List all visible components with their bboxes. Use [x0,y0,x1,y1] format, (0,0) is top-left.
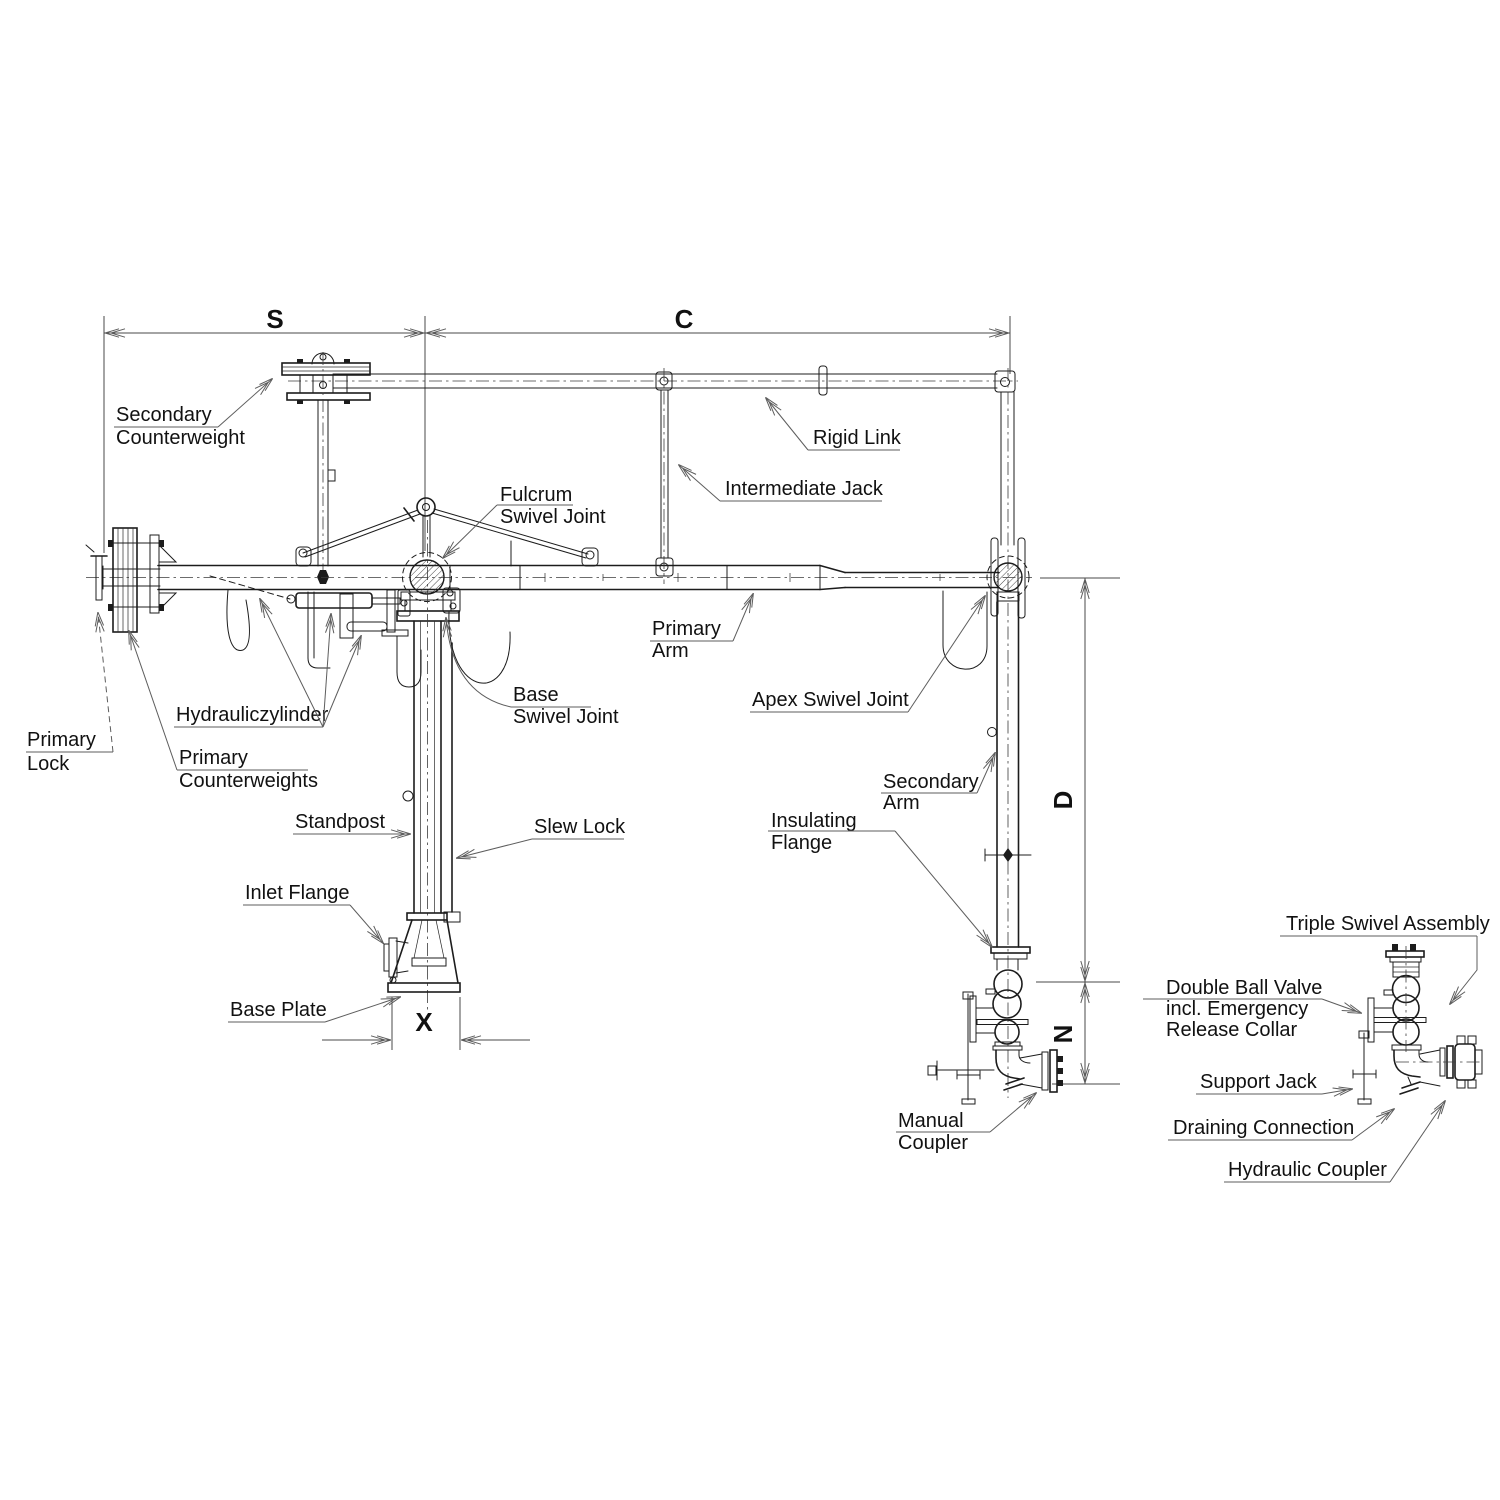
dimension-n-letter: N [1048,1025,1078,1044]
svg-text:Slew Lock: Slew Lock [534,816,626,838]
svg-text:Rigid Link: Rigid Link [813,427,902,449]
svg-text:Base Plate: Base Plate [230,999,327,1021]
svg-text:Apex Swivel Joint: Apex Swivel Joint [752,689,909,711]
svg-text:Support Jack: Support Jack [1200,1071,1318,1093]
svg-text:Insulating: Insulating [771,810,857,832]
svg-text:Primary: Primary [179,747,248,769]
svg-text:Manual: Manual [898,1110,964,1132]
svg-text:Inlet Flange: Inlet Flange [245,882,350,904]
svg-text:Triple Swivel Assembly: Triple Swivel Assembly [1286,913,1490,935]
svg-text:Counterweight: Counterweight [116,427,245,449]
svg-text:Primary: Primary [27,729,96,751]
svg-text:Hydrauliczylinder: Hydrauliczylinder [176,704,329,726]
technical-drawing-page: S C X D N [0,0,1500,1500]
svg-text:Release Collar: Release Collar [1166,1019,1298,1041]
svg-text:Swivel Joint: Swivel Joint [513,706,619,728]
svg-text:Secondary: Secondary [116,404,212,426]
svg-text:Primary: Primary [652,618,721,640]
svg-text:Fulcrum: Fulcrum [500,484,572,506]
svg-text:Hydraulic Coupler: Hydraulic Coupler [1228,1159,1387,1181]
svg-text:Arm: Arm [883,792,920,814]
svg-text:Secondary: Secondary [883,771,979,793]
svg-text:Base: Base [513,684,559,706]
svg-text:Intermediate Jack: Intermediate Jack [725,478,884,500]
dimension-s-letter: S [266,304,283,334]
svg-text:Coupler: Coupler [898,1132,968,1154]
svg-text:Flange: Flange [771,832,832,854]
svg-text:Swivel Joint: Swivel Joint [500,506,606,528]
svg-text:Lock: Lock [27,753,70,775]
svg-text:Arm: Arm [652,640,689,662]
svg-text:incl. Emergency: incl. Emergency [1166,998,1308,1020]
dimension-c-letter: C [675,304,694,334]
dimension-d-letter: D [1048,791,1078,810]
svg-text:Draining Connection: Draining Connection [1173,1117,1354,1139]
dimension-x-letter: X [415,1007,433,1037]
svg-text:Double Ball Valve: Double Ball Valve [1166,977,1322,999]
svg-text:Standpost: Standpost [295,811,386,833]
svg-text:Counterweights: Counterweights [179,770,318,792]
loading-arm-diagram: S C X D N [0,0,1500,1500]
